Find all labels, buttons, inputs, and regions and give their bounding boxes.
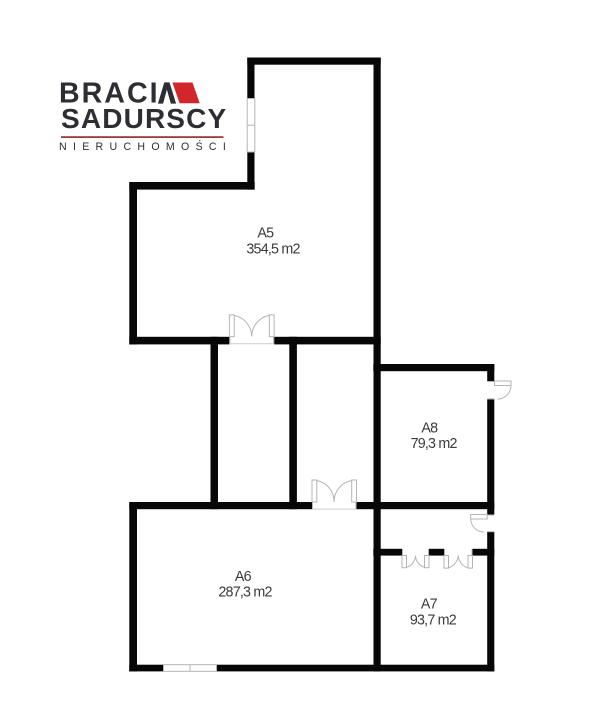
svg-text:NIERUCHOMOŚCI: NIERUCHOMOŚCI [59, 140, 232, 153]
svg-text:A7: A7 [421, 597, 438, 613]
svg-text:93,7 m2: 93,7 m2 [410, 613, 457, 629]
svg-text:79,3 m2: 79,3 m2 [411, 436, 458, 452]
svg-text:354,5 m2: 354,5 m2 [246, 242, 300, 258]
svg-text:SADURSCY: SADURSCY [61, 103, 227, 134]
svg-text:287,3 m2: 287,3 m2 [218, 585, 272, 601]
svg-text:A8: A8 [421, 420, 438, 436]
svg-text:A5: A5 [257, 226, 274, 242]
svg-text:A6: A6 [235, 569, 252, 585]
